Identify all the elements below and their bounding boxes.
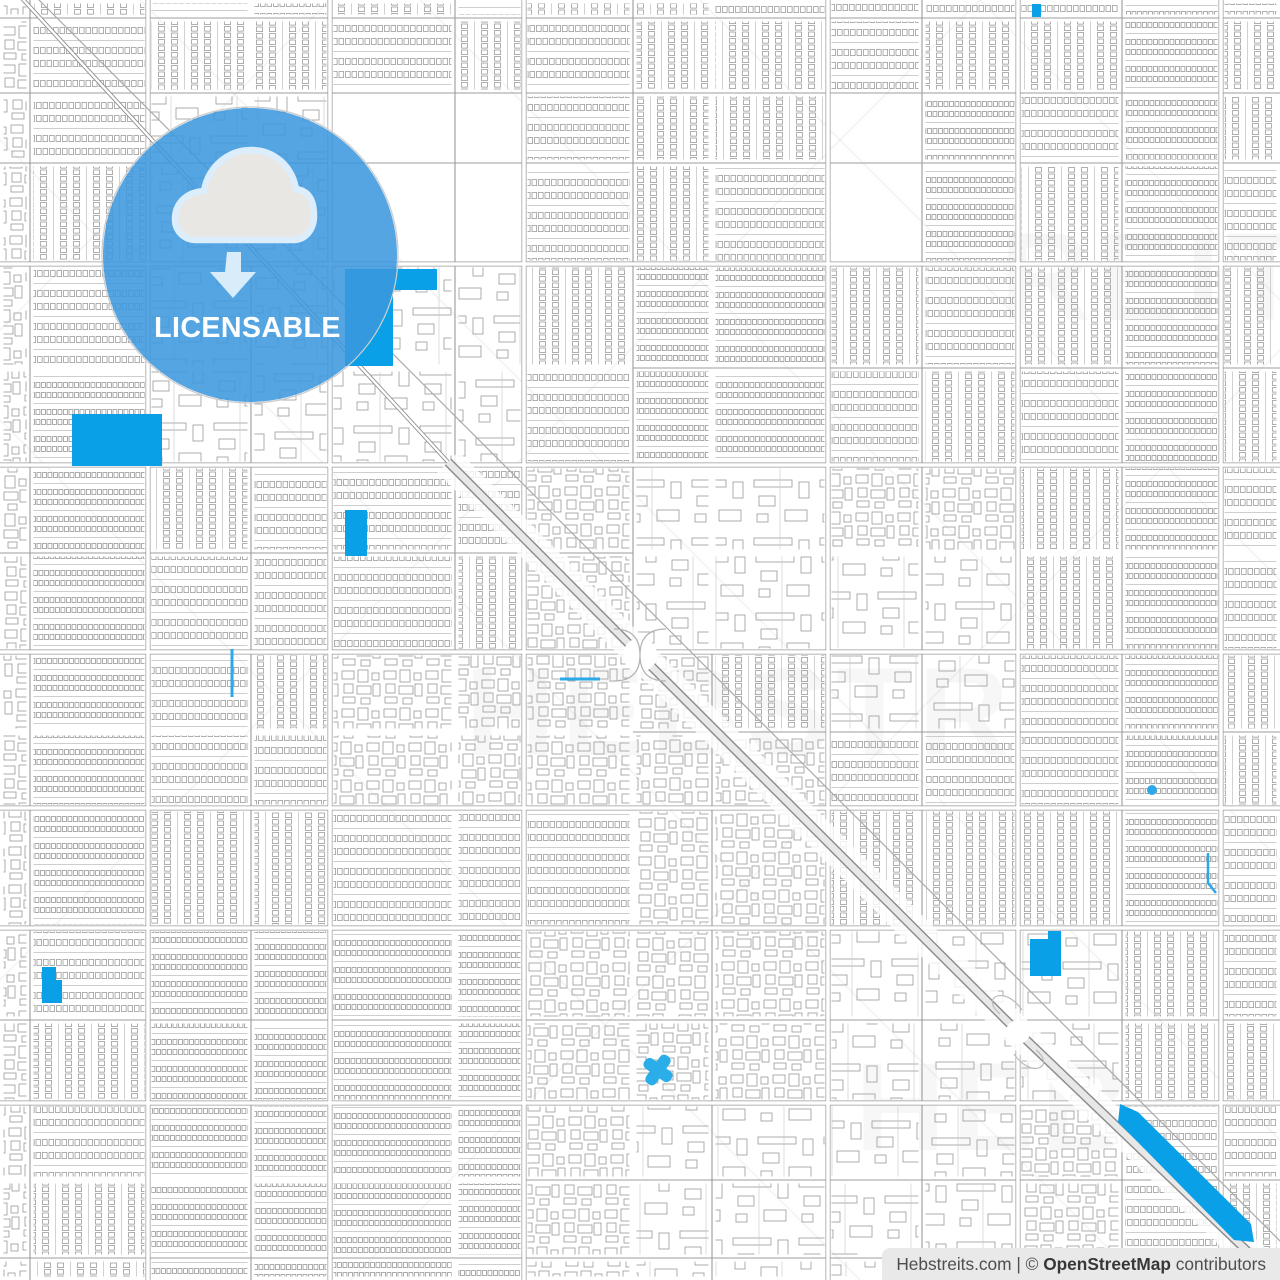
svg-text:LICENSABLE: LICENSABLE	[154, 312, 341, 344]
svg-text:Hebstreits.com | © OpenStreetM: Hebstreits.com | © OpenStreetMap contrib…	[896, 1254, 1266, 1274]
